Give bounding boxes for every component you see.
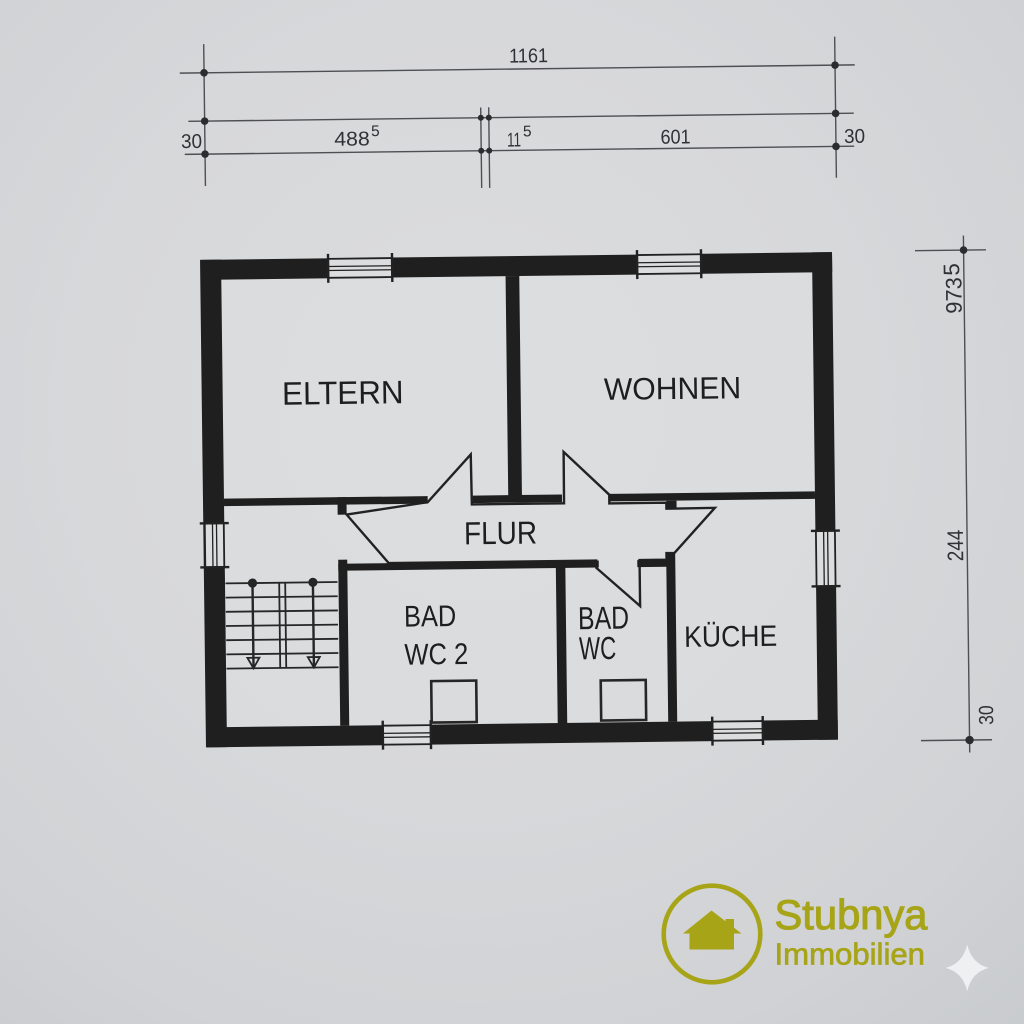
svg-text:30: 30 <box>181 131 202 153</box>
svg-text:1161: 1161 <box>509 45 548 67</box>
svg-text:601: 601 <box>660 126 690 148</box>
svg-text:5: 5 <box>939 263 964 276</box>
svg-text:Stubnya: Stubnya <box>775 891 929 938</box>
svg-text:Immobilien: Immobilien <box>775 938 926 972</box>
svg-text:FLUR: FLUR <box>464 514 537 551</box>
svg-text:WOHNEN: WOHNEN <box>604 370 742 407</box>
svg-text:BAD: BAD <box>404 600 457 634</box>
svg-text:WC 2: WC 2 <box>404 638 468 672</box>
svg-text:5: 5 <box>523 123 532 140</box>
svg-text:5: 5 <box>371 123 380 140</box>
svg-text:244: 244 <box>943 530 968 562</box>
svg-text:30: 30 <box>975 705 998 725</box>
svg-text:ELTERN: ELTERN <box>282 374 404 411</box>
svg-text:WC: WC <box>579 630 617 666</box>
svg-text:30: 30 <box>844 126 865 148</box>
svg-text:488: 488 <box>334 128 370 150</box>
svg-text:11: 11 <box>507 129 521 151</box>
svg-text:973: 973 <box>941 277 966 314</box>
svg-text:KÜCHE: KÜCHE <box>684 620 777 654</box>
